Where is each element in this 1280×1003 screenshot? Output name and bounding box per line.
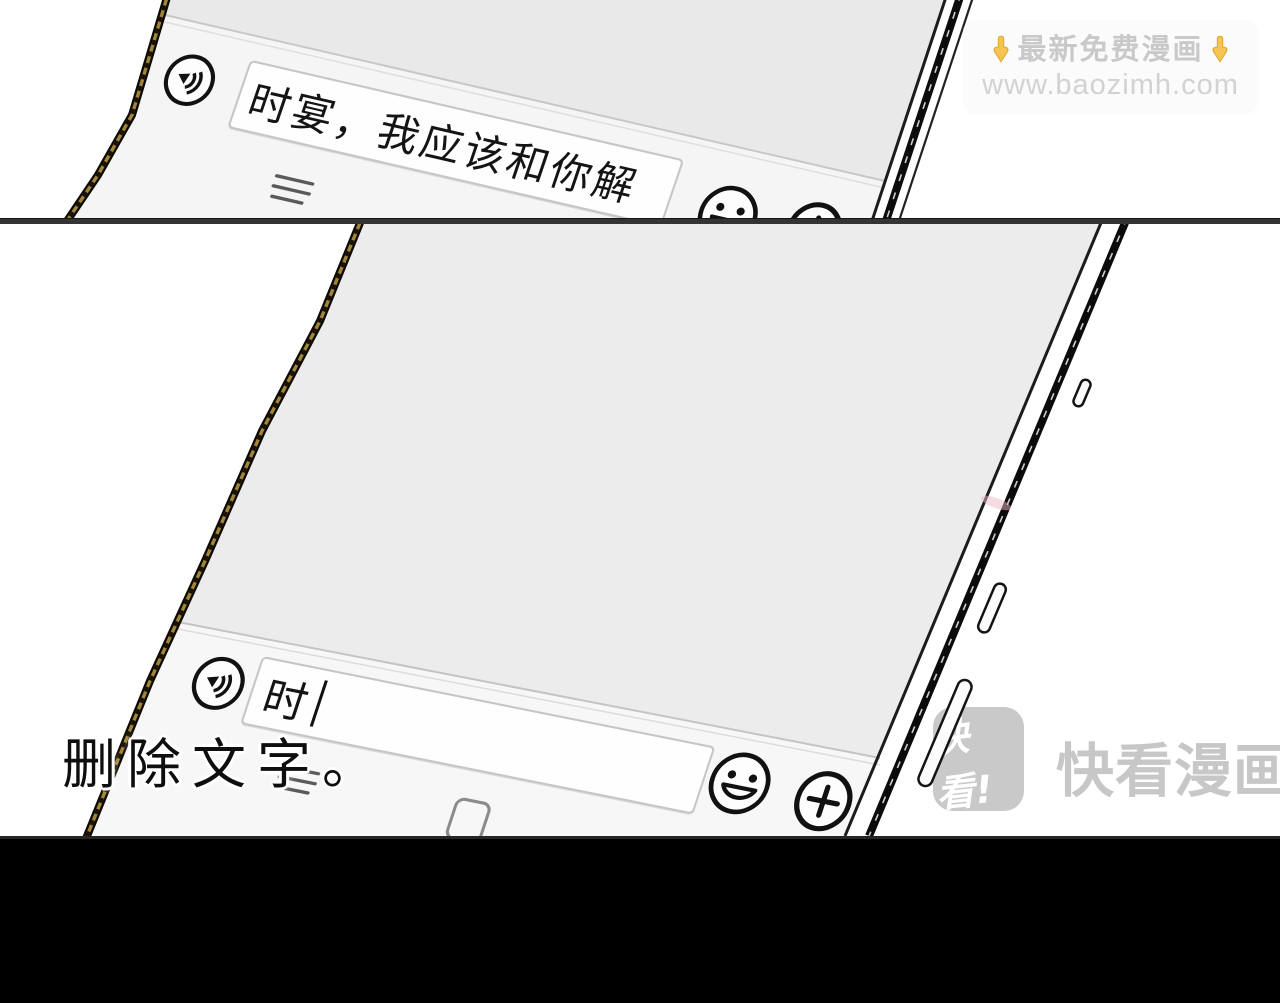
bottom-black-band — [0, 836, 1280, 1003]
narration-caption: 删除文字。 — [62, 720, 387, 799]
side-button-small — [1072, 378, 1092, 408]
chat-input-bar-top: 时宴，我应该和你解 — [0, 0, 1100, 218]
pointing-down-hand-icon — [1209, 35, 1231, 63]
baozimh-watermark: 最新免费漫画 www.baozimh.com — [963, 20, 1258, 114]
watermark-url: www.baozimh.com — [982, 71, 1239, 100]
emoji-button[interactable] — [685, 178, 769, 218]
watermark-text: 最新免费漫画 — [1017, 35, 1203, 64]
keyboard-menu-button[interactable] — [265, 172, 315, 211]
voice-button[interactable] — [152, 47, 226, 117]
plus-icon — [775, 196, 853, 218]
comic-page: { "panel1": { "input_text": "时宴，我应该和你解",… — [0, 0, 1280, 1000]
attach-button[interactable] — [782, 765, 863, 836]
hamburger-icon — [267, 172, 316, 207]
pointing-down-hand-icon — [990, 35, 1012, 63]
kuaikan-watermark-text: 快看漫画 — [1056, 724, 1280, 808]
phone-right-edge — [871, 0, 947, 218]
plus-icon — [783, 765, 863, 836]
home-indicator[interactable] — [443, 796, 493, 836]
attach-button[interactable] — [774, 196, 853, 218]
panel-top: 时宴，我应该和你解 最新免费漫画 — [0, 0, 1280, 218]
panel-bottom: 快看! 快看漫画 时 — [0, 224, 1280, 836]
smiley-icon — [686, 178, 769, 218]
